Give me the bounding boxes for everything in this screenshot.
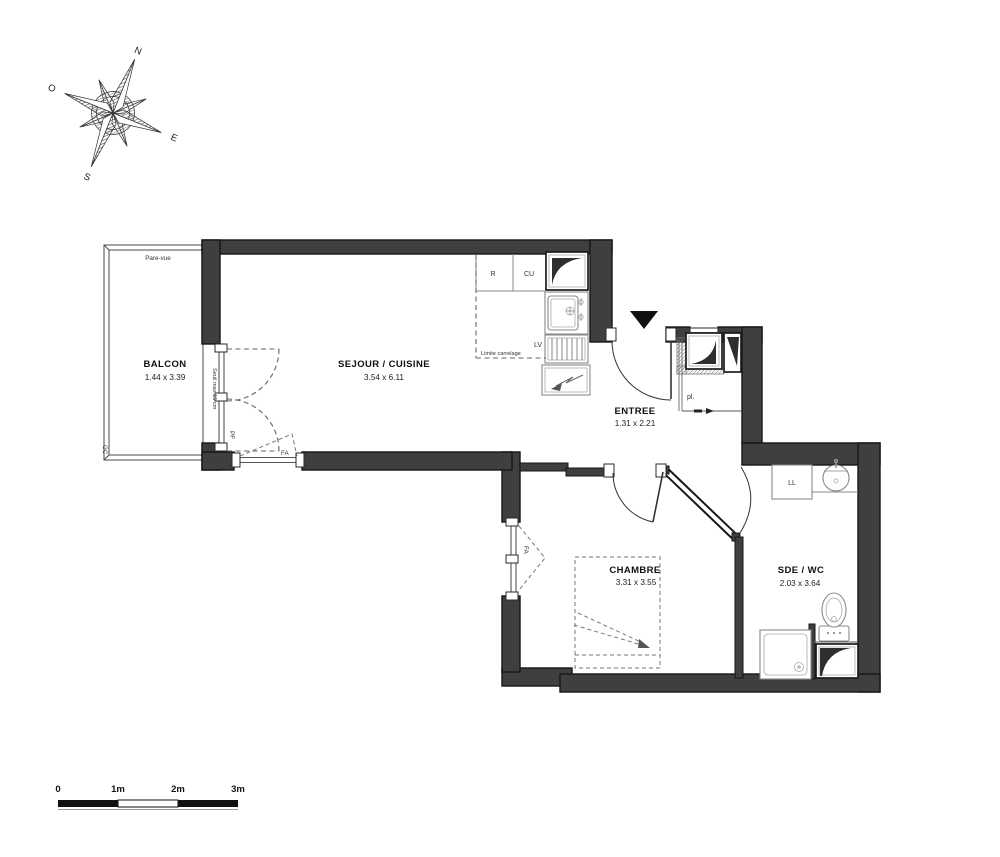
living-room-dims: 3.54 x 6.11 [364,373,404,382]
fa-sejour-label: FA [281,450,289,457]
balcony-dims: 1.44 x 3.39 [145,373,186,382]
scale-3m-label: 3m [231,784,245,795]
balcony-railing-outer [104,245,203,460]
bathroom-door [738,467,751,536]
closet-label: pl. [687,394,694,401]
floor-plan-page: N E S O Pare-vue GC BALCON 1.44 x 3.39 [0,0,1000,857]
scale-2m-label: 2m [171,784,185,795]
washing-machine-label: LL [788,480,796,487]
cooktop-label: CU [524,271,534,278]
balcony-railing-inner [109,250,203,455]
closet-shaft-b [724,333,741,372]
bathroom: LL [760,459,858,679]
pare-vue-label: Pare-vue [145,255,171,262]
scale-bar: 0 1m 2m 3m [55,784,245,810]
entry-closet: pl. [677,333,742,414]
wall-bath-right [858,443,880,692]
wall-chambre-top-a [520,463,568,471]
pf-label: PF [228,431,235,439]
compass-main-points [43,40,183,187]
entry-dims: 1.31 x 2.21 [615,419,656,428]
bedroom-dims: 3.31 x 3.55 [616,578,657,587]
chambre-door [604,464,666,522]
gc-label: GC [101,445,108,455]
closet-sliding-rail [682,408,742,414]
fa-chambre-swing [519,526,545,590]
closet-shaft-a [686,333,722,369]
kitchen-counter [476,254,545,291]
wall-bath-left [735,537,743,678]
shower [760,630,811,679]
dishwasher-label: LV [534,342,542,349]
entrance-marker-triangle [630,311,658,329]
scale-1m-label: 1m [111,784,125,795]
compass-rose: N E S O [20,20,204,208]
windows [215,344,518,600]
entrance-door [606,328,676,400]
living-room-name: SEJOUR / CUISINE [338,359,430,370]
compass-south-label: S [82,171,92,184]
compass-east-label: E [169,132,179,145]
wall-right-upper [742,327,762,443]
entry-name: ENTREE [615,406,656,417]
toilet [819,593,849,641]
bed-direction-arrows [574,613,650,648]
tiling-limit-label: Limite carrelage [481,351,521,357]
compass-west-label: O [46,82,57,95]
kitchen-dishwasher [545,335,588,363]
kitchen-shaft [546,252,588,290]
kitchen-cabinet [542,365,590,395]
kitchen: R CU [476,252,590,395]
balcony-name: BALCON [143,359,186,370]
bathroom-shaft [814,642,858,678]
wall-sejour-bottom-a [202,452,234,470]
floor-plan-drawing: N E S O Pare-vue GC BALCON 1.44 x 3.39 [0,0,1000,857]
wall-balcony-column [202,240,220,344]
fa-chambre-label: FA [522,546,529,554]
bedroom: CHAMBRE 3.31 x 3.55 [574,557,661,668]
bedroom-name: CHAMBRE [609,565,660,576]
kitchen-sink [545,292,588,334]
balcony: Pare-vue GC BALCON 1.44 x 3.39 [101,245,203,460]
wall-kitchen-jog [590,240,612,342]
threshold-label: Seuil max 15 cm [211,368,217,410]
wall-sejour-bottom-b [302,452,512,470]
compass-north-label: N [133,45,144,58]
wall-chambre-left-lower [502,596,520,672]
bathroom-dims: 2.03 x 3.64 [780,579,821,588]
scale-0-label: 0 [55,784,60,795]
wall-diagonal [661,466,740,541]
fridge-label: R [490,271,495,278]
bathroom-name: SDE / WC [778,565,824,576]
window-fa-chambre [506,518,518,600]
